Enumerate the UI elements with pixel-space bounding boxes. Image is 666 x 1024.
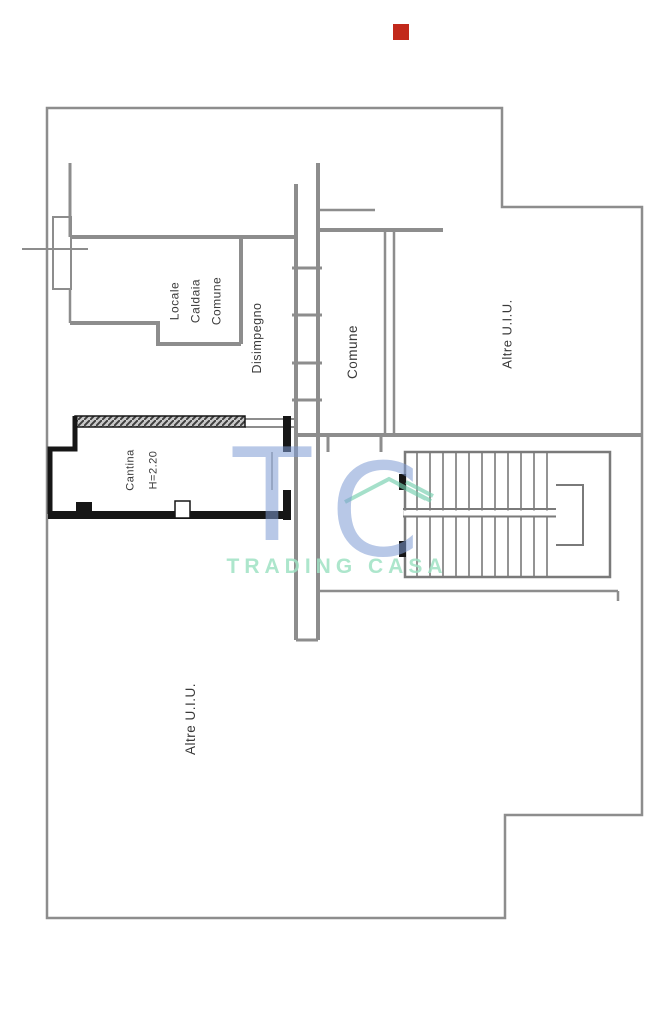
room-label-comune: Comune — [341, 325, 365, 379]
room-label-altre-uiu-bottom: Altre U.I.U. — [179, 683, 203, 755]
interior-walls — [70, 163, 642, 640]
hatched-wall — [75, 416, 245, 427]
room-label-disimpegno: Disimpegno — [247, 302, 269, 373]
window-symbol — [22, 217, 88, 289]
room-label-cantina: Cantina — [121, 449, 140, 490]
room-label-cantina-height: H=2.20 — [144, 451, 163, 490]
floor-plan-drawing — [0, 0, 666, 1024]
door-jamb — [399, 541, 406, 557]
cantina-walls — [48, 416, 293, 520]
stair-return-rail — [556, 485, 583, 545]
door-opening — [175, 501, 190, 518]
room-label-altre-uiu-right: Altre U.I.U. — [497, 299, 520, 369]
floor-plan-canvas: Locale Caldaia Comune Disimpegno Comune … — [0, 0, 666, 1024]
staircase — [399, 452, 610, 577]
red-marker-square — [393, 24, 409, 40]
house-roof-icon — [345, 479, 433, 502]
room-label-locale-caldaia-comune: Locale Caldaia Comune — [165, 277, 228, 325]
